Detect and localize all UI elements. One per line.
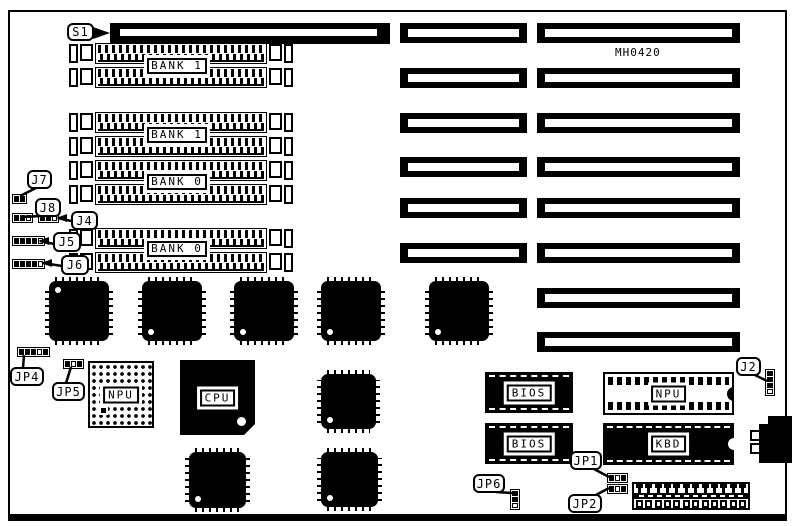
- pin1-marker: [237, 417, 246, 426]
- kbd-label: KBD: [651, 436, 687, 453]
- power-connector-pins-bottom: [634, 499, 748, 508]
- power-connector-pins-top: [634, 484, 748, 493]
- qfp-chip: [230, 277, 298, 345]
- motherboard-diagram: S1 BANK 1 BANK 1 BANK 0 BANK 0 J7 J8 J4 …: [0, 0, 796, 526]
- expansion-slot: [537, 157, 740, 177]
- jumper-j5: [12, 236, 45, 246]
- jumper-jp6: [510, 489, 520, 510]
- slot-stripe: [120, 29, 377, 36]
- keyboard-din-connector: [759, 424, 792, 463]
- keyboard-controller-chip: KBD: [603, 423, 734, 465]
- qfp-chip: [317, 448, 382, 511]
- s1-slot: [110, 23, 390, 44]
- callout-j5: J5: [53, 232, 81, 252]
- npu-pga-socket: NPU: [88, 361, 154, 428]
- callout-j4: J4: [71, 211, 98, 230]
- expansion-slot: [537, 198, 740, 218]
- power-connector: [632, 482, 750, 510]
- expansion-slot: [537, 243, 740, 263]
- cpu-chip: CPU: [180, 360, 255, 435]
- callout-jp5: JP5: [52, 382, 85, 401]
- jumper-j8: [12, 213, 33, 223]
- qfp-chip: [45, 277, 113, 345]
- callout-j8: J8: [35, 198, 61, 217]
- expansion-slot: [400, 23, 527, 43]
- pin1-marker: [435, 329, 441, 335]
- expansion-slot: [537, 288, 740, 308]
- pin1-marker: [195, 496, 201, 502]
- qfp-chip: [317, 277, 385, 345]
- qfp-chip: [317, 370, 380, 433]
- expansion-slot: [400, 243, 527, 263]
- pin1-marker: [148, 329, 154, 335]
- bios-chip-upper: BIOS: [485, 372, 573, 413]
- qfp-chip: [425, 277, 493, 345]
- board-part-number: MH0420: [615, 46, 661, 59]
- bank-label: BANK 0: [147, 241, 207, 257]
- pin1-marker: [101, 408, 106, 413]
- jumper-j7: [12, 194, 27, 204]
- npu-dip-label: NPU: [651, 385, 687, 402]
- bank-label: BANK 1: [147, 127, 207, 143]
- pin1-marker: [55, 287, 61, 293]
- jumper-j6: [12, 259, 45, 269]
- bank-label: BANK 0: [147, 174, 207, 190]
- bank-label: BANK 1: [147, 58, 207, 74]
- callout-j6: J6: [61, 255, 89, 275]
- callout-j2: J2: [736, 357, 761, 376]
- pin1-marker: [327, 329, 333, 335]
- expansion-slot: [400, 68, 527, 88]
- expansion-slot: [537, 113, 740, 133]
- jumper-j2: [765, 369, 775, 396]
- qfp-chip: [185, 448, 250, 512]
- npu-socket-label: NPU: [103, 386, 139, 403]
- callout-j7: J7: [27, 170, 52, 189]
- callout-s1: S1: [67, 23, 94, 41]
- expansion-slot: [400, 157, 527, 177]
- bios-lower-label: BIOS: [507, 435, 552, 452]
- expansion-slot: [537, 68, 740, 88]
- expansion-slot: [400, 198, 527, 218]
- callout-jp4: JP4: [10, 367, 44, 386]
- jumper-jp4: [17, 347, 50, 357]
- jumper-jp2: [607, 484, 628, 494]
- qfp-chip: [138, 277, 206, 345]
- jumper-jp1: [607, 473, 628, 483]
- pin1-marker: [327, 417, 333, 423]
- expansion-slot: [400, 113, 527, 133]
- din-connector-pin: [750, 430, 761, 441]
- callout-jp1: JP1: [570, 451, 602, 470]
- bios-upper-label: BIOS: [507, 384, 552, 401]
- npu-dip-socket: NPU: [603, 372, 734, 415]
- jumper-jp5: [63, 359, 84, 369]
- expansion-slot: [537, 23, 740, 43]
- expansion-slot: [537, 332, 740, 352]
- bios-chip-lower: BIOS: [485, 423, 573, 464]
- pin1-marker: [240, 329, 246, 335]
- din-connector-pin: [750, 443, 761, 454]
- cpu-label: CPU: [200, 389, 236, 406]
- callout-jp2: JP2: [568, 494, 602, 513]
- callout-jp6: JP6: [473, 474, 505, 493]
- pin1-marker: [327, 495, 333, 501]
